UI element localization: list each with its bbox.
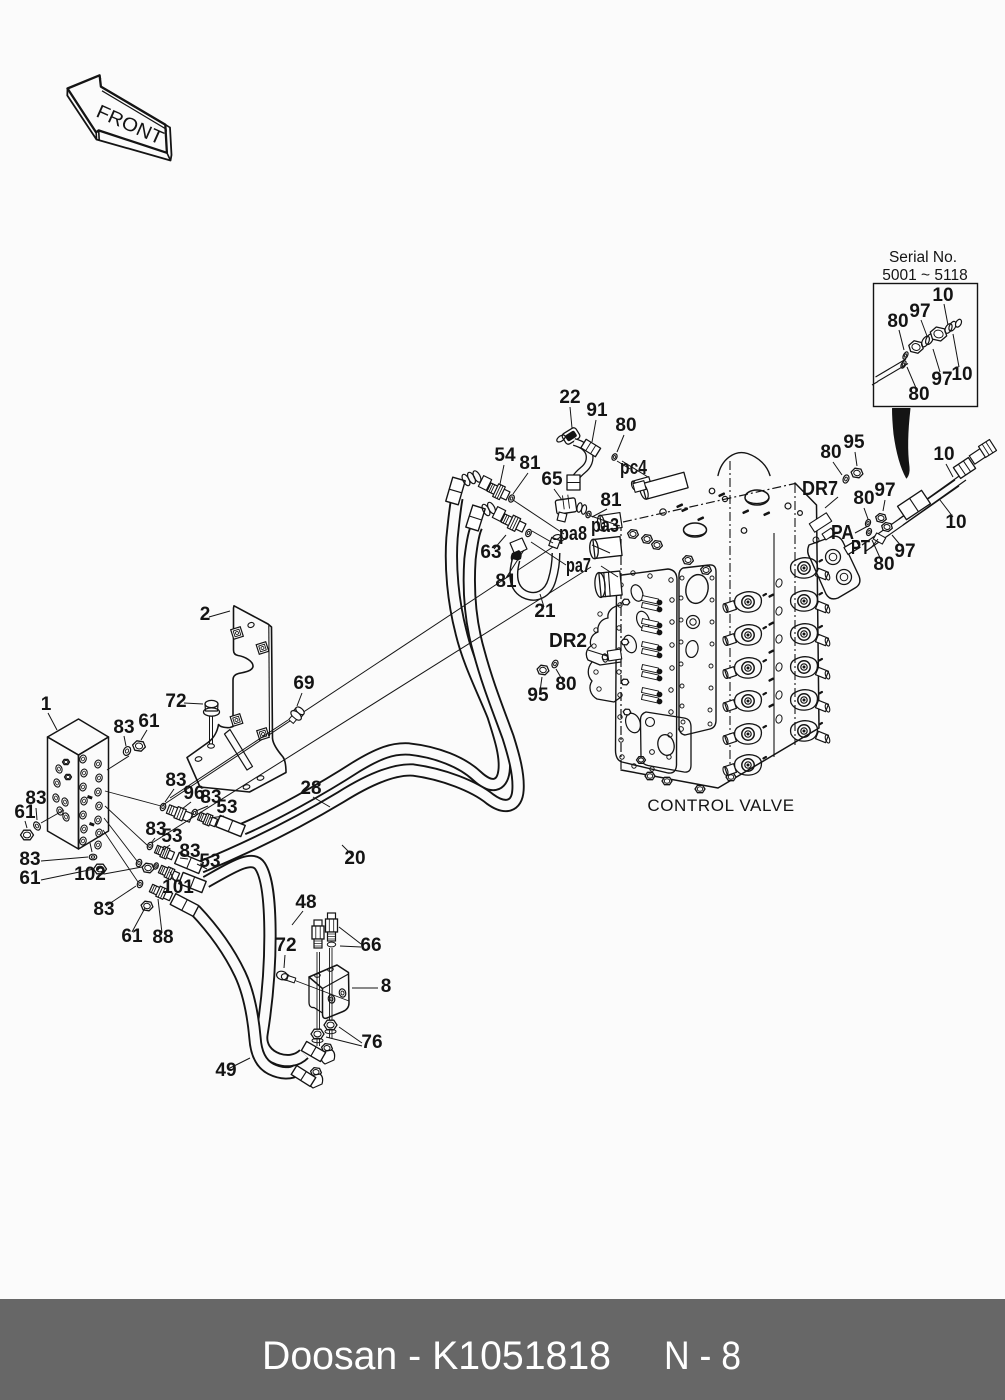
svg-text:1: 1 [41,694,52,715]
svg-text:DR7: DR7 [802,478,838,500]
svg-text:pa7: pa7 [566,555,591,577]
svg-text:95: 95 [843,432,865,453]
svg-text:pa8: pa8 [559,523,587,545]
svg-text:48: 48 [295,892,316,913]
svg-text:80: 80 [887,311,908,332]
svg-text:10: 10 [933,444,954,465]
svg-text:97: 97 [909,301,930,322]
svg-text:69: 69 [293,673,314,694]
svg-text:Doosan - K1051818: Doosan - K1051818 [262,1334,611,1378]
svg-text:80: 80 [820,442,841,463]
svg-text:88: 88 [152,927,173,948]
svg-text:80: 80 [873,554,894,575]
svg-text:49: 49 [215,1060,236,1081]
svg-text:81: 81 [519,453,541,474]
svg-text:10: 10 [951,364,972,385]
svg-text:54: 54 [494,445,516,466]
svg-text:5001 ~ 5118: 5001 ~ 5118 [882,267,967,284]
svg-text:2: 2 [200,604,211,625]
svg-text:PT: PT [851,537,870,559]
svg-text:21: 21 [534,601,556,622]
svg-text:8: 8 [381,976,392,997]
svg-text:61: 61 [19,868,41,889]
svg-text:80: 80 [908,384,929,405]
svg-text:61: 61 [121,926,143,947]
svg-text:pa3: pa3 [591,515,619,537]
svg-text:101: 101 [162,877,194,898]
svg-text:53: 53 [199,851,220,872]
svg-text:95: 95 [527,685,549,706]
svg-text:81: 81 [600,490,622,511]
svg-text:63: 63 [480,542,501,563]
svg-text:97: 97 [894,541,915,562]
svg-text:CONTROL VALVE: CONTROL VALVE [647,796,794,815]
svg-text:10: 10 [945,512,966,533]
svg-text:102: 102 [74,864,106,885]
svg-text:76: 76 [361,1032,382,1053]
svg-text:65: 65 [541,469,563,490]
svg-text:N - 8: N - 8 [664,1334,741,1378]
svg-text:97: 97 [874,480,895,501]
svg-text:28: 28 [300,778,321,799]
svg-text:72: 72 [165,691,186,712]
svg-text:72: 72 [275,935,296,956]
svg-text:83: 83 [19,849,40,870]
svg-text:81: 81 [495,571,517,592]
svg-text:97: 97 [931,369,952,390]
svg-text:80: 80 [615,415,636,436]
svg-text:91: 91 [586,400,608,421]
svg-text:10: 10 [932,285,953,306]
svg-text:61: 61 [14,802,36,823]
svg-text:Serial No.: Serial No. [889,249,957,266]
svg-text:DR2: DR2 [549,630,587,652]
svg-text:80: 80 [853,488,874,509]
svg-text:83: 83 [113,717,134,738]
svg-text:61: 61 [138,711,160,732]
svg-text:22: 22 [559,387,580,408]
svg-text:83: 83 [179,841,200,862]
svg-text:66: 66 [360,935,381,956]
svg-text:53: 53 [216,797,237,818]
svg-text:80: 80 [555,674,576,695]
